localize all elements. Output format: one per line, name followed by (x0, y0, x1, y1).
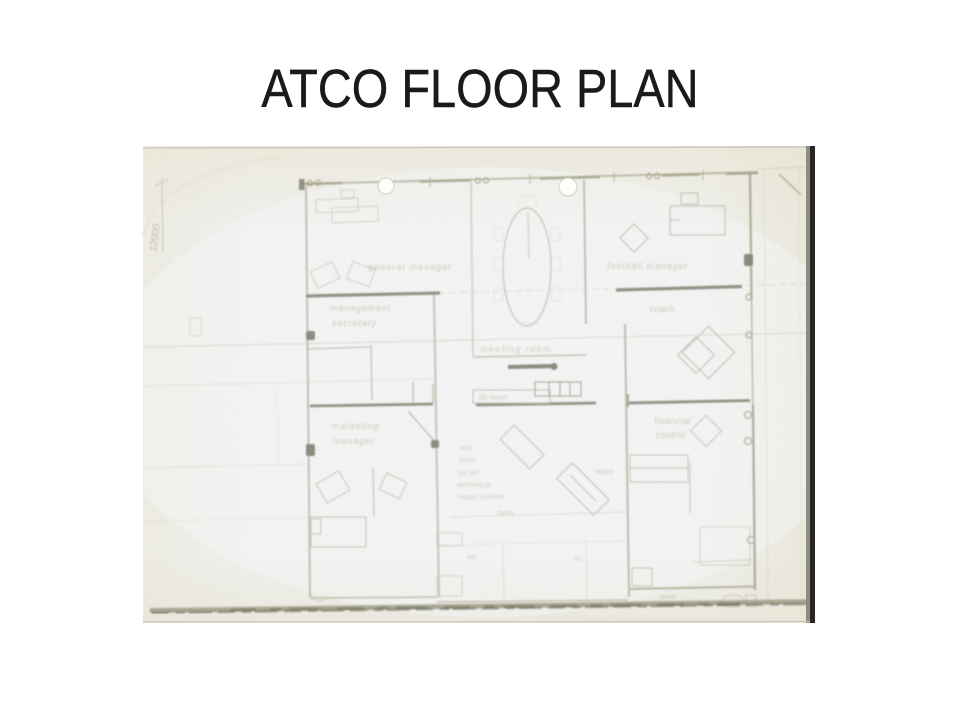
svg-text:manager: manager (333, 436, 375, 446)
svg-text:gst art: gst art (458, 468, 480, 477)
svg-text:oven: oven (497, 508, 513, 517)
svg-text:wc: wc (467, 552, 476, 561)
svg-text:control: control (656, 430, 686, 440)
svg-text:management: management (330, 303, 391, 313)
svg-text:football manager: football manager (607, 261, 689, 271)
svg-text:happy cabinet: happy cabinet (457, 492, 505, 501)
svg-text:meeting room: meeting room (480, 344, 552, 354)
svg-text:wc: wc (574, 554, 583, 563)
svg-text:werkkamp: werkkamp (457, 480, 491, 489)
svg-text:general manager: general manager (368, 262, 453, 272)
svg-text:oven: oven (660, 592, 676, 601)
svg-text:lib room: lib room (479, 393, 508, 402)
svg-text:plato: plato (458, 455, 475, 464)
svg-text:coach: coach (650, 304, 674, 314)
svg-text:marketing: marketing (332, 421, 380, 431)
svg-text:wan: wan (459, 443, 473, 452)
svg-text:repro: repro (595, 467, 614, 476)
svg-text:financial: financial (654, 416, 691, 426)
svg-text:secretary: secretary (332, 318, 377, 328)
